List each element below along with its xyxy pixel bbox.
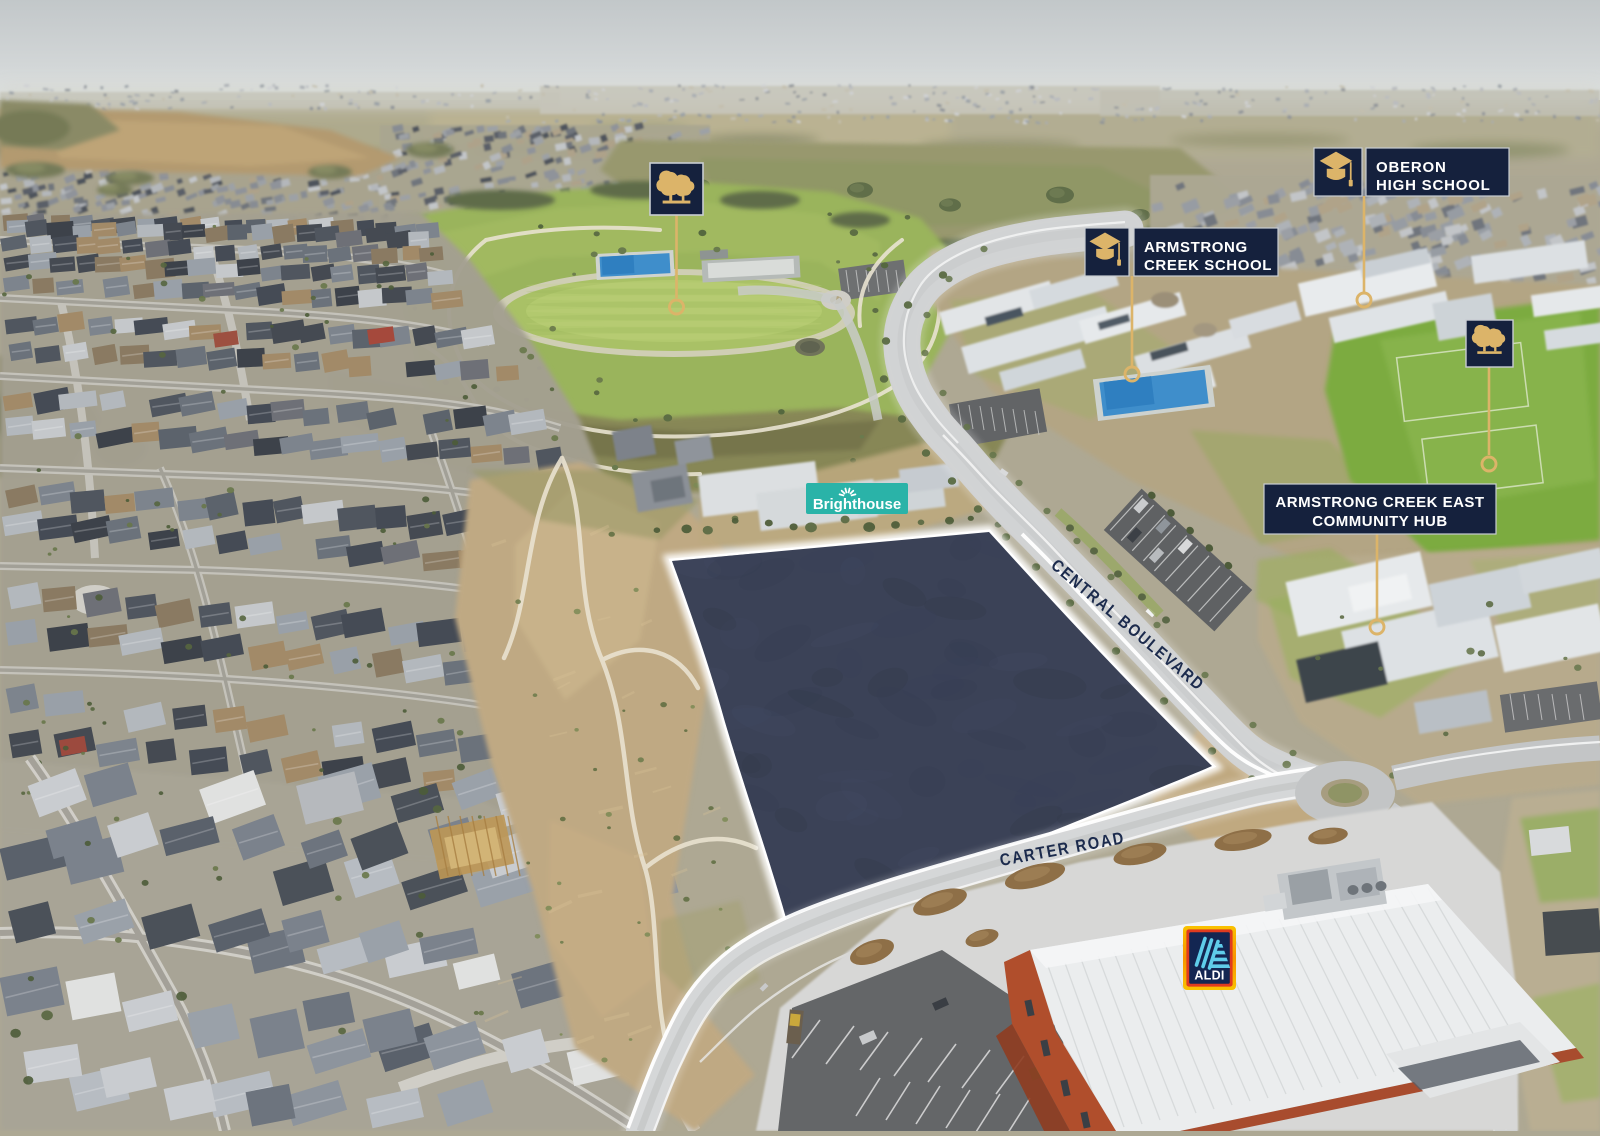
svg-text:Brighthouse: Brighthouse bbox=[813, 496, 901, 513]
svg-text:COMMUNITY HUB: COMMUNITY HUB bbox=[1312, 513, 1447, 530]
svg-text:ALDI: ALDI bbox=[1194, 969, 1224, 983]
svg-text:OBERON: OBERON bbox=[1376, 159, 1447, 176]
svg-text:CREEK SCHOOL: CREEK SCHOOL bbox=[1144, 257, 1272, 274]
svg-text:ARMSTRONG: ARMSTRONG bbox=[1144, 239, 1248, 256]
svg-text:ARMSTRONG CREEK EAST: ARMSTRONG CREEK EAST bbox=[1275, 494, 1484, 511]
svg-text:HIGH SCHOOL: HIGH SCHOOL bbox=[1376, 177, 1491, 194]
